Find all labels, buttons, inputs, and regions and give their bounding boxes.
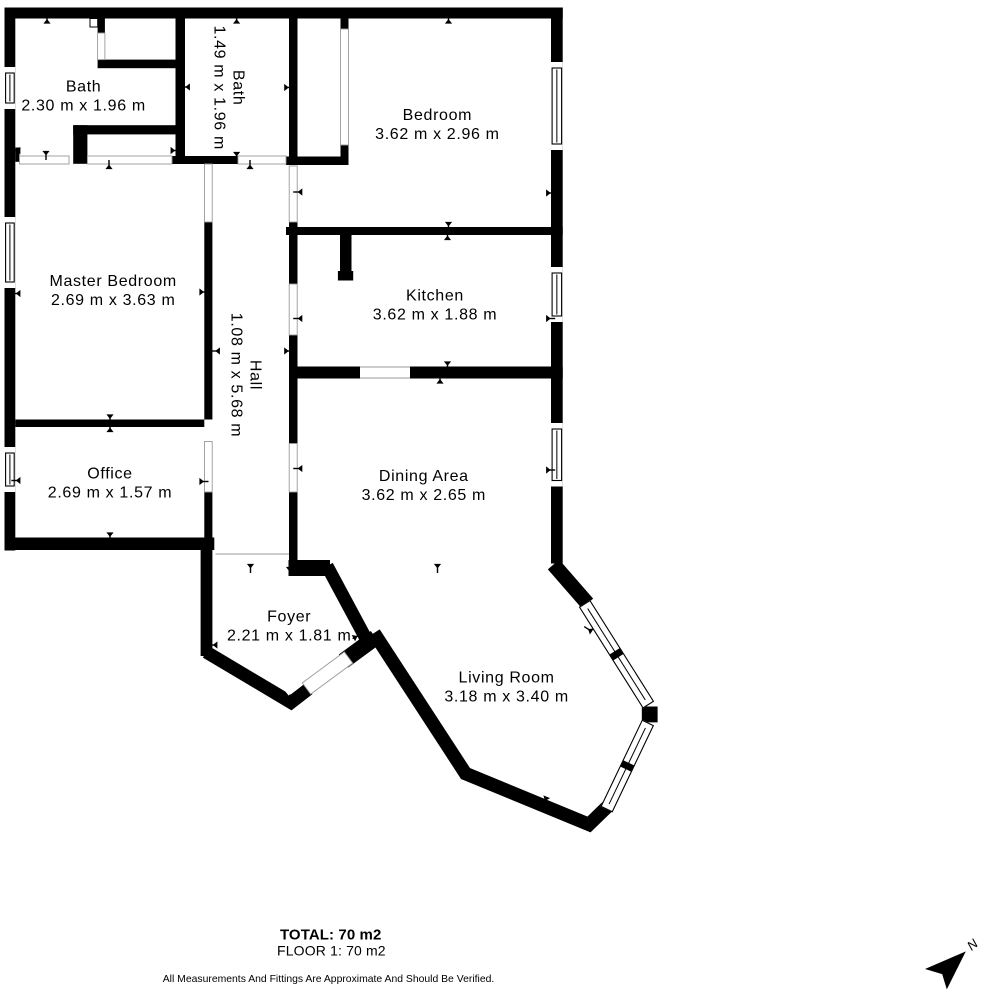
svg-text:3.62 m x 2.96 m: 3.62 m x 2.96 m [375,126,499,143]
svg-text:Bath: Bath [66,79,102,96]
svg-text:Bedroom: Bedroom [403,107,472,124]
svg-text:3.62 m x 2.65 m: 3.62 m x 2.65 m [362,487,486,504]
svg-text:Office: Office [87,466,132,483]
svg-text:3.18 m x 3.40 m: 3.18 m x 3.40 m [444,688,568,705]
svg-text:Kitchen: Kitchen [406,288,464,305]
svg-text:1.49 m x 1.96 m: 1.49 m x 1.96 m [211,25,228,149]
svg-text:Bath: Bath [230,70,247,106]
svg-text:Dining Area: Dining Area [379,468,469,485]
svg-text:3.62 m x 1.88 m: 3.62 m x 1.88 m [373,307,497,324]
svg-text:1.08 m x 5.68 m: 1.08 m x 5.68 m [227,313,244,437]
svg-text:FLOOR 1: 70 m2: FLOOR 1: 70 m2 [277,943,386,959]
svg-text:Foyer: Foyer [267,609,311,626]
svg-text:2.30 m x 1.96 m: 2.30 m x 1.96 m [21,98,145,115]
svg-text:All Measurements And Fittings: All Measurements And Fittings Are Approx… [163,974,495,985]
svg-text:Living Room: Living Room [459,669,555,686]
svg-text:2.21 m x 1.81 m: 2.21 m x 1.81 m [227,628,351,645]
svg-text:2.69 m x 1.57 m: 2.69 m x 1.57 m [48,485,172,502]
svg-text:2.69 m x 3.63 m: 2.69 m x 3.63 m [51,292,175,309]
svg-text:TOTAL: 70 m2: TOTAL: 70 m2 [280,927,382,944]
svg-text:Master Bedroom: Master Bedroom [50,273,177,290]
svg-text:Hall: Hall [246,360,263,390]
